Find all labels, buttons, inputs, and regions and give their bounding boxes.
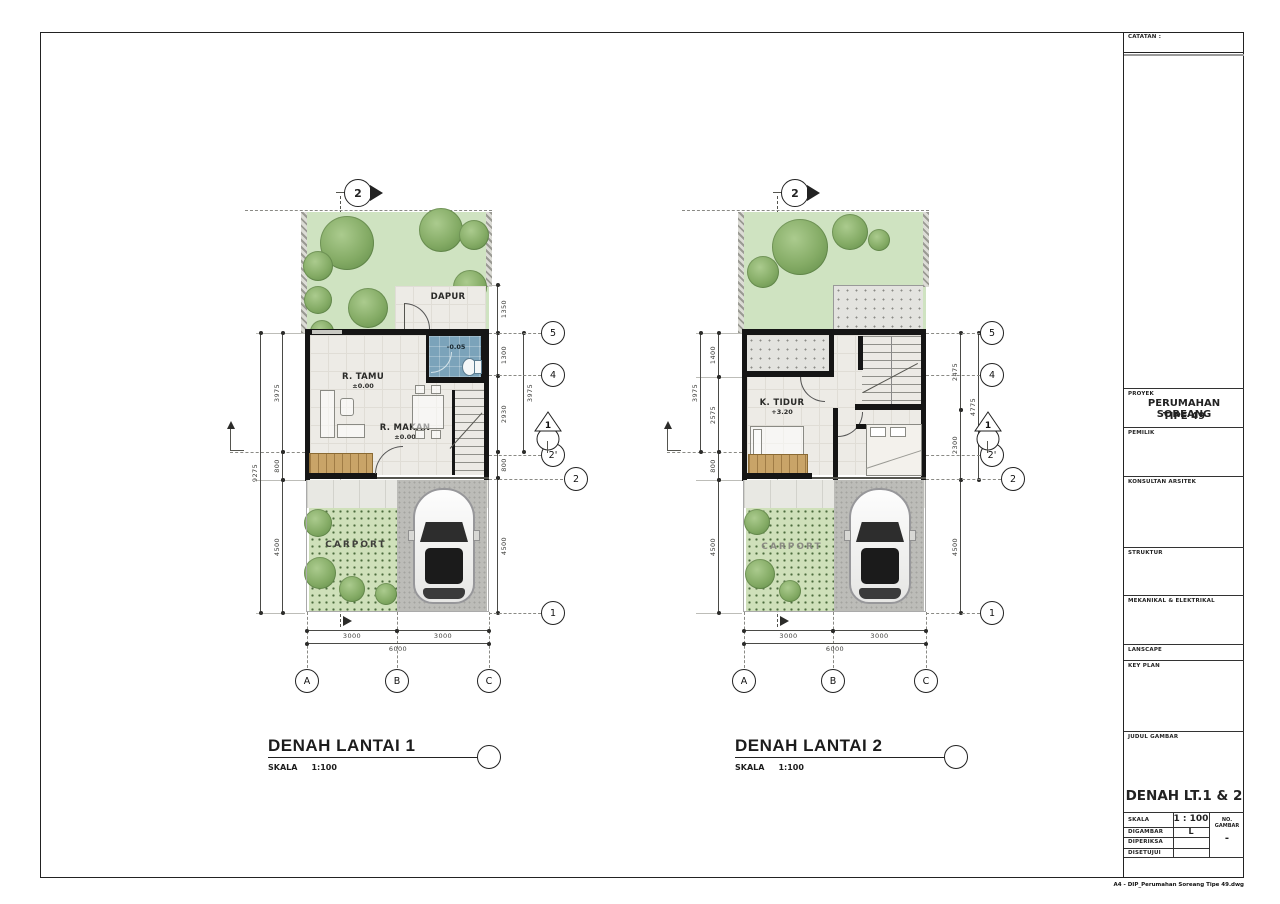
grid-bubble-C: C [477, 669, 501, 693]
tree [304, 509, 332, 537]
plan2-scale: SKALA1:100 [735, 763, 804, 772]
digambar-value: L [1173, 827, 1209, 836]
room-label-tamu: R. TAMU [333, 372, 393, 382]
tree [304, 286, 332, 314]
table-divider [1124, 837, 1209, 838]
tree [459, 220, 489, 250]
p1-plot-edge [306, 480, 307, 612]
dim-label: 2575 [709, 405, 717, 423]
section-cut-tail [667, 450, 681, 451]
dimension-line: 3975 [282, 333, 283, 452]
p2-wall-stairs [858, 336, 863, 370]
p1-fence-right [486, 212, 492, 287]
car-mirror [473, 530, 480, 541]
plan1-title: DENAH LANTAI 1 [268, 736, 415, 756]
dimension-line: 3000 [397, 630, 489, 631]
car-mirror [408, 530, 415, 541]
car-roof [425, 548, 463, 584]
car-rear-window [859, 588, 901, 599]
section-arrow [370, 185, 383, 201]
dining-table [412, 395, 444, 429]
mekanikal-label: MEKANIKAL & ELEKTRIKAL [1128, 598, 1215, 604]
p2-roof-deck [833, 285, 923, 333]
section-marker-2: 2 [344, 179, 372, 207]
room-label-tidur1: K. TIDUR [752, 398, 812, 408]
grid-bubble-1: 1 [980, 601, 1004, 625]
dim-label: 3000 [779, 632, 797, 640]
gridline [489, 455, 541, 456]
gridline [489, 375, 541, 376]
grid-bubble-4: 4 [980, 363, 1004, 387]
keyplan-label: KEY PLAN [1128, 663, 1160, 669]
gridline [926, 375, 980, 376]
p1-window-top [312, 330, 342, 334]
p1-plot-edge [307, 611, 489, 612]
plan1-scale: SKALA1:100 [268, 763, 337, 772]
svg-text:1: 1 [545, 421, 551, 431]
pillow [753, 429, 762, 457]
dim-label: 1350 [500, 300, 508, 318]
p1-stairs [452, 390, 484, 475]
grid-bubble-A: A [295, 669, 319, 693]
struktur-section: STRUKTUR [1124, 547, 1244, 595]
sofa [320, 390, 335, 438]
grid-bubble-2: 2 [1001, 467, 1025, 491]
dimension-line: 3975 [700, 333, 701, 452]
dimension-line: 3000 [833, 630, 926, 631]
grid-bubble-2: 2 [564, 467, 588, 491]
catatan-label: CATATAN : [1128, 34, 1161, 40]
dimension-line: 1300 [497, 333, 498, 376]
gridline [397, 612, 398, 668]
dimension-line: 4500 [282, 480, 283, 613]
tree [375, 583, 397, 605]
dim-label: 1400 [709, 346, 717, 364]
grid-bubble-4: 4 [541, 363, 565, 387]
gridline [833, 612, 834, 668]
skala-label: SKALA [1128, 817, 1149, 823]
dimension-line: 4500 [960, 480, 961, 613]
section-cut-tail [230, 429, 231, 451]
toilet-tank [474, 360, 482, 374]
pemilik-section: PEMILIK [1124, 427, 1244, 476]
dim-label: 3000 [434, 632, 452, 640]
dimension-line: 6000 [744, 643, 926, 644]
scale-value: 1:100 [778, 763, 803, 772]
catatan-section: CATATAN : [1124, 32, 1244, 53]
gridline [926, 333, 980, 334]
approval-table: SKALA 1 : 100 NO. GAMBAR DIGAMBAR L DIPE… [1124, 812, 1244, 857]
pillow [890, 427, 906, 437]
section-cut-tail [230, 450, 244, 451]
gridline [489, 613, 541, 614]
judul-section: JUDUL GAMBAR DENAH LT.1 & 2 [1124, 731, 1244, 812]
room-label-dapur: DAPUR [418, 292, 478, 302]
dim-label: 2300 [951, 436, 959, 454]
title-circle [944, 745, 968, 769]
dimension-line: 2930 [497, 376, 498, 452]
judul-label: JUDUL GAMBAR [1128, 734, 1178, 740]
gridline [744, 612, 745, 668]
grid-bubble-5: 5 [541, 321, 565, 345]
p1-floor-edge [377, 477, 489, 479]
dimension-line: 1400 [718, 333, 719, 377]
car-mirror [844, 530, 851, 541]
mekanikal-section: MEKANIKAL & ELEKTRIKAL [1124, 595, 1244, 644]
car-mirror [909, 530, 916, 541]
car-body [849, 488, 911, 604]
tree [419, 208, 463, 252]
p2-wall-stairs [855, 404, 926, 410]
dimension-line: 6000 [307, 643, 489, 644]
proyek-label: PROYEK [1128, 391, 1154, 397]
section-cut-arrow [664, 421, 672, 429]
dim-label: 3000 [343, 632, 361, 640]
dimension-line: 2475 [960, 333, 961, 410]
marker-leader [987, 441, 988, 453]
p1-wall-bottom [305, 473, 377, 479]
section-cut-arrow [227, 421, 235, 429]
gridline [489, 612, 490, 668]
svg-text:1: 1 [985, 421, 991, 431]
project-type: TIPE 49 [1124, 411, 1244, 422]
dim-label: 6000 [389, 645, 407, 653]
gridline [489, 333, 541, 334]
dimension-line: 1350 [497, 285, 498, 333]
konsultan-section: KONSULTAN ARSITEK [1124, 476, 1244, 547]
tree [779, 580, 801, 602]
tree [303, 251, 333, 281]
title-circle [477, 745, 501, 769]
chair [415, 430, 425, 439]
gridline [489, 479, 563, 480]
gridline [926, 455, 980, 456]
dimension-line: 2300 [960, 410, 961, 480]
chair [415, 385, 425, 394]
car [409, 486, 479, 608]
pillow [870, 427, 886, 437]
title-block: CATATAN : PROYEK PERUMAHAN SOREANG TIPE … [1123, 32, 1244, 878]
p2-wall-bottom [742, 473, 812, 479]
keyplan-section: KEY PLAN [1124, 660, 1244, 731]
dimension-line: 3000 [307, 630, 397, 631]
dimension-line: 3975 [523, 333, 524, 452]
dimension-line: 9275 [260, 333, 261, 613]
section-cut-tail [667, 429, 668, 451]
p2-plot-edge [925, 480, 926, 612]
p2-plot-edge [743, 480, 744, 612]
gridline-2p [667, 452, 742, 453]
konsultan-label: KONSULTAN ARSITEK [1128, 479, 1196, 485]
dim-label: 4500 [709, 537, 717, 555]
proyek-section: PROYEK PERUMAHAN SOREANG TIPE 49 [1124, 388, 1244, 427]
dim-label: 3975 [691, 383, 699, 401]
struktur-label: STRUKTUR [1128, 550, 1163, 556]
bath-level: -0.05 [436, 343, 476, 351]
dim-label: 800 [273, 459, 281, 473]
table-divider [1124, 848, 1209, 849]
no-gambar-label: NO. GAMBAR [1209, 817, 1245, 829]
dim-label: 3000 [870, 632, 888, 640]
p2-void-slab [747, 336, 829, 372]
dim-label: 1300 [500, 345, 508, 363]
room-level-tamu: ±0.00 [333, 382, 393, 390]
chair [431, 430, 441, 439]
drawing-title: DENAH LT.1 & 2 [1124, 788, 1244, 804]
drawing-sheet: CATATAN : PROYEK PERUMAHAN SOREANG TIPE … [0, 0, 1280, 904]
coffee-table [340, 398, 354, 416]
grid-bubble-C: C [914, 669, 938, 693]
room-label-carport: CARPORT [752, 542, 832, 552]
tree [832, 214, 868, 250]
room-label-carport: CARPORT [316, 540, 396, 550]
gridline-2p [230, 452, 305, 453]
grid-bubble-5: 5 [980, 321, 1004, 345]
section-marker-1: 1 [533, 408, 563, 452]
dim-label: 3975 [526, 383, 534, 401]
tree [772, 219, 828, 275]
sheet-border [40, 32, 1244, 878]
car-windshield [420, 522, 468, 542]
skala-value: 1 : 100 [1173, 814, 1209, 824]
grid-bubble-1: 1 [541, 601, 565, 625]
grid-bubble-A: A [732, 669, 756, 693]
dim-label: 3975 [273, 383, 281, 401]
p1-wall-right [484, 329, 489, 481]
section-marker-1: 1 [973, 408, 1003, 452]
dimension-line: 800 [718, 452, 719, 480]
p1-plot-edge [488, 480, 489, 612]
gridline [926, 613, 980, 614]
dim-label: 9275 [251, 464, 259, 482]
stair-divider [891, 336, 892, 406]
title-underline [268, 757, 477, 758]
lanscape-label: LANSCAPE [1128, 647, 1162, 653]
scale-value: 1:100 [311, 763, 336, 772]
tree [747, 256, 779, 288]
sofa [337, 424, 365, 438]
dim-label: 2475 [951, 362, 959, 380]
p2-boundary-line [682, 210, 929, 211]
dim-label: 800 [709, 459, 717, 473]
car-roof [861, 548, 899, 584]
p1-wall-bath-bottom [426, 378, 489, 383]
room-level-tidur1: +3.20 [752, 408, 812, 416]
marker-leader [547, 441, 548, 453]
p2-plot-edge [744, 611, 926, 612]
disetujui-label: DISETUJUI [1128, 850, 1161, 856]
dim-label: 6000 [826, 645, 844, 653]
p1-boundary-line [245, 210, 492, 211]
dimension-line: 800 [282, 452, 283, 480]
door-leaf [404, 303, 405, 329]
scale-label: SKALA [268, 763, 297, 772]
p1-section-arrow [343, 616, 352, 626]
catatan-divider [1124, 54, 1244, 56]
p2-section-arrow [780, 616, 789, 626]
dimension-line: 2575 [718, 377, 719, 452]
dimension-line: 3000 [744, 630, 833, 631]
section-arrow [807, 185, 820, 201]
diperiksa-label: DIPERIKSA [1128, 839, 1163, 845]
chair [431, 385, 441, 394]
gridline [926, 479, 1001, 480]
grid-bubble-B: B [385, 669, 409, 693]
title-underline [735, 757, 944, 758]
grid-bubble-B: B [821, 669, 845, 693]
dim-label: 4500 [500, 536, 508, 554]
file-reference: A4 - DIP_Perumahan Soreang Tipe 49.dwg [1000, 882, 1244, 888]
p2-fence-left [738, 212, 744, 333]
gridline [307, 612, 308, 668]
dimension-line: 4500 [497, 478, 498, 613]
tree [868, 229, 890, 251]
room-level-makan: ±0.00 [375, 433, 435, 441]
car-rear-window [423, 588, 465, 599]
tree [304, 557, 336, 589]
lanscape-section: LANSCAPE [1124, 644, 1244, 660]
pemilik-label: PEMILIK [1128, 430, 1155, 436]
empty-section [1124, 857, 1244, 878]
p2-fence-right [923, 212, 929, 287]
dimension-line: 4500 [718, 480, 719, 613]
no-gambar-value: - [1209, 833, 1245, 844]
car-body [413, 488, 475, 604]
plan2-title: DENAH LANTAI 2 [735, 736, 882, 756]
gridline [926, 612, 927, 668]
dim-label: 2930 [500, 405, 508, 423]
dim-label: 4500 [951, 537, 959, 555]
p2-floor-edge [812, 477, 926, 479]
digambar-label: DIGAMBAR [1128, 829, 1163, 835]
car-windshield [856, 522, 904, 542]
tree [745, 559, 775, 589]
dim-label: 800 [500, 458, 508, 472]
p2-wall-interior [829, 335, 834, 377]
tree [348, 288, 388, 328]
scale-label: SKALA [735, 763, 764, 772]
section-marker-2: 2 [781, 179, 809, 207]
tree [339, 576, 365, 602]
dim-label: 4500 [273, 537, 281, 555]
tree [744, 509, 770, 535]
dimension-line: 4775 [978, 333, 979, 480]
car [845, 486, 915, 608]
